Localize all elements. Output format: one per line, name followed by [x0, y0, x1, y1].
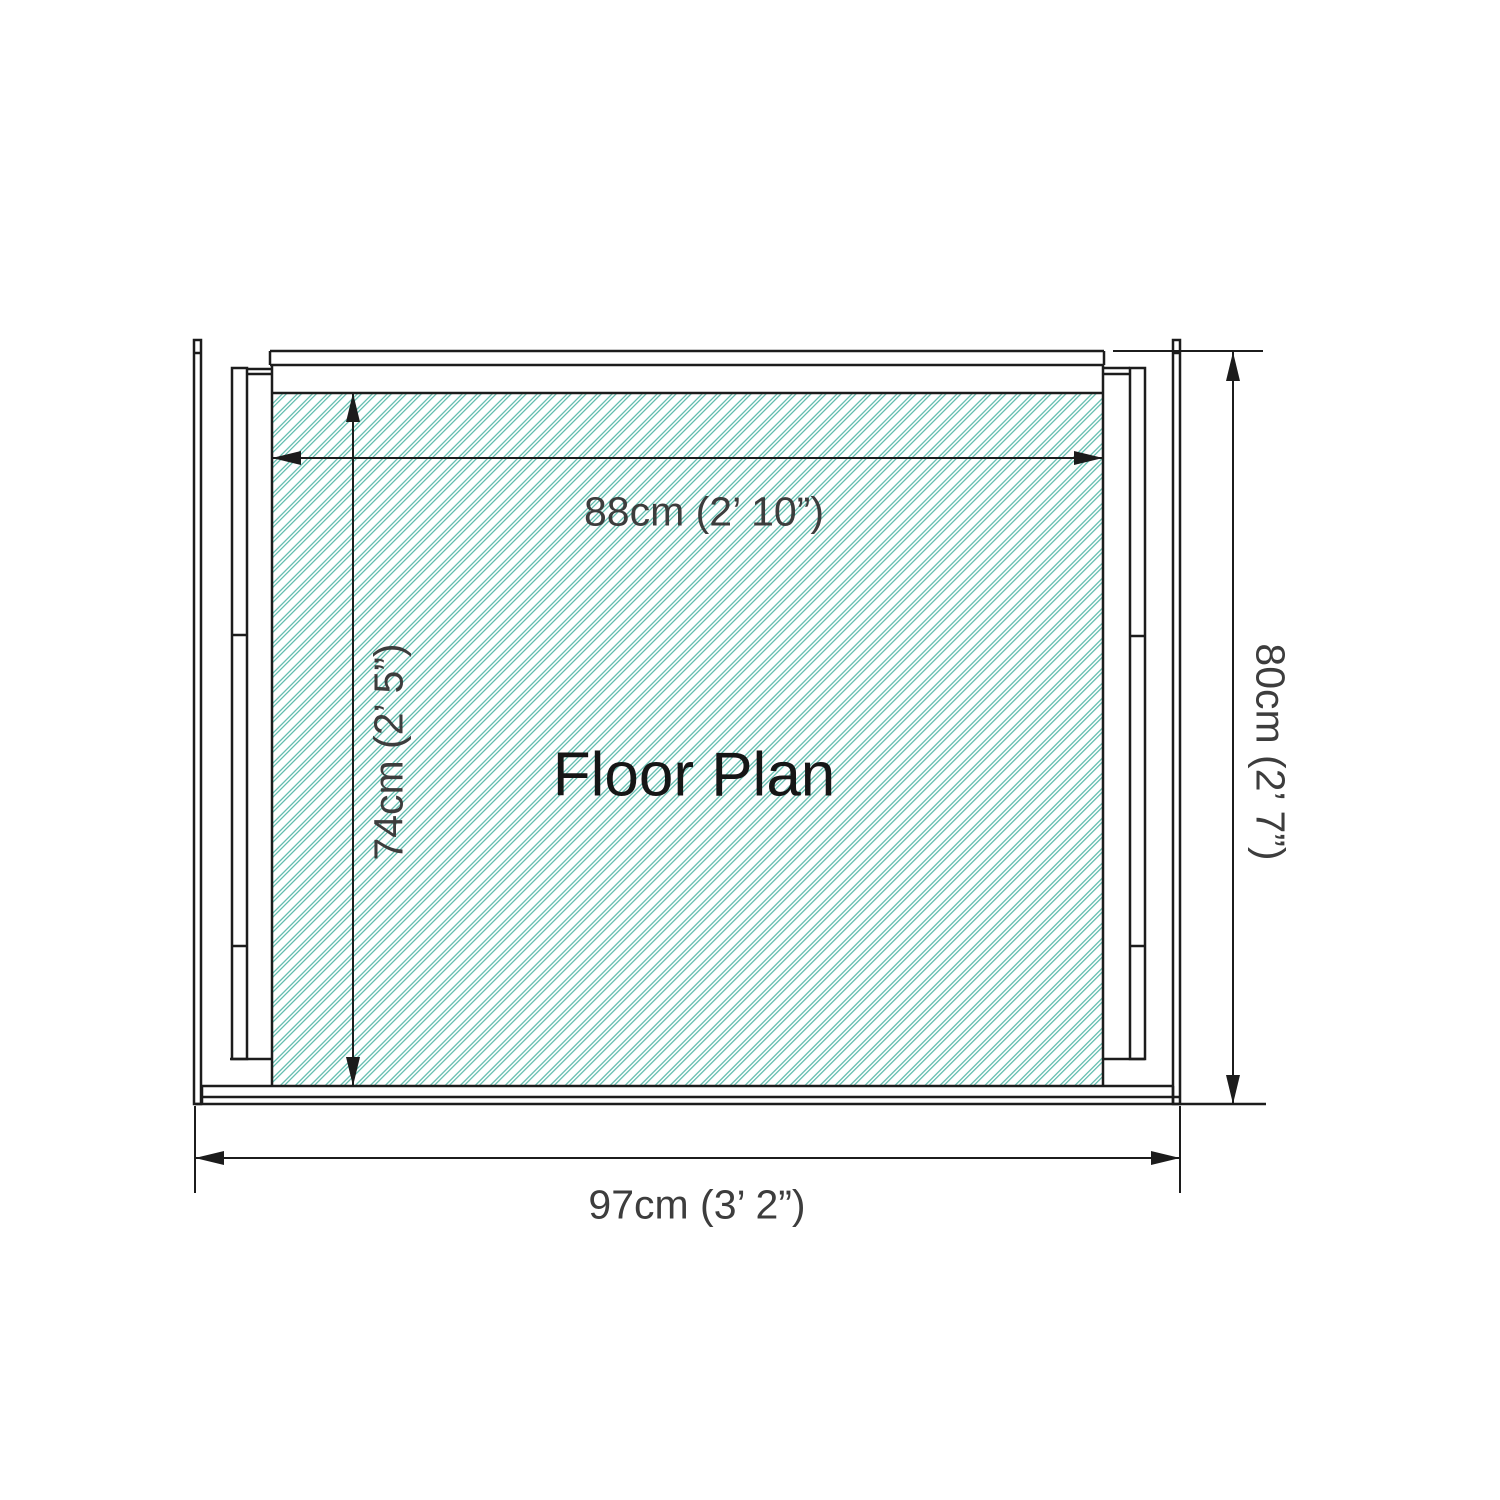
arrow-left-icon	[195, 1151, 224, 1165]
outer-width-dimension-label: 97cm (3’ 2”)	[588, 1182, 805, 1229]
floor-plan-title: Floor Plan	[553, 740, 836, 811]
inner-depth-dimension-label: 74cm (2’ 5”)	[366, 643, 413, 860]
arrow-down-icon	[1226, 1075, 1240, 1104]
arrow-up-icon	[1226, 352, 1240, 381]
arrow-right-icon	[1151, 1151, 1180, 1165]
inner-width-dimension-label: 88cm (2’ 10”)	[584, 489, 824, 536]
outer-depth-dimension-label: 80cm (2’ 7”)	[1247, 643, 1294, 860]
floor-plan-diagram: Floor Plan 88cm (2’ 10”) 74cm (2’ 5”) 80…	[0, 0, 1500, 1500]
